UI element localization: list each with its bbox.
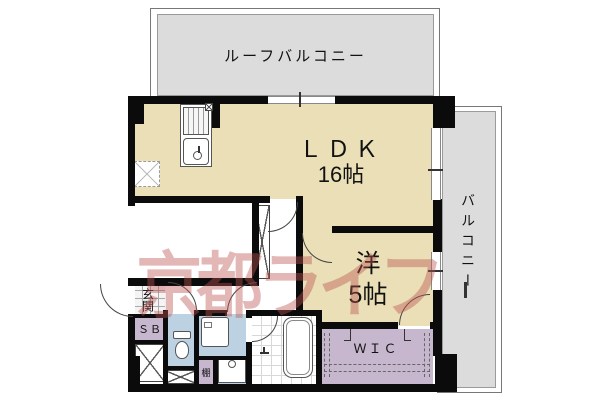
- shower-pipe-icon: [263, 347, 265, 354]
- window: [268, 96, 335, 104]
- wic-label: ＷＩＣ: [336, 339, 416, 355]
- wic-hanger-dashes-bottom: [324, 364, 430, 372]
- western-room-label: 洋: [340, 248, 396, 276]
- bathtub-inner-icon: [286, 320, 310, 375]
- floor-plan: ルーフバルコニー バルコニー ＳＢ 棚: [0, 0, 600, 400]
- gas-stove-icon: [183, 107, 209, 135]
- toilet-door-arc: [168, 282, 197, 311]
- range-hood-icon: [205, 103, 213, 111]
- wall: [435, 354, 457, 385]
- wall: [133, 314, 165, 318]
- roof-balcony-label: ルーフバルコニー: [157, 14, 434, 96]
- ldk-door-arc: [268, 202, 298, 232]
- wall: [163, 366, 199, 370]
- ldk-floor-lower: [296, 199, 435, 229]
- wall: [128, 384, 457, 392]
- wall: [433, 96, 455, 128]
- wall: [163, 310, 168, 385]
- window: [431, 128, 441, 200]
- wall: [430, 322, 435, 329]
- refrigerator-space-icon: [134, 161, 160, 187]
- wall: [198, 310, 227, 316]
- wall: [296, 226, 302, 233]
- wall: [246, 342, 252, 385]
- entrance-door-arc: [100, 284, 133, 317]
- faucet-spout-icon: [198, 146, 200, 153]
- wall: [128, 196, 270, 203]
- washroom-door-arc: [227, 282, 257, 312]
- wall: [128, 96, 268, 104]
- wall: [133, 340, 165, 344]
- wall: [433, 199, 442, 252]
- ldk-size-label: 16帖: [283, 160, 399, 186]
- toilet-tank-icon: [173, 331, 191, 339]
- window-tick: [299, 92, 301, 107]
- wall: [332, 226, 435, 233]
- wall: [316, 322, 398, 329]
- window-tick: [428, 270, 443, 272]
- washbasin-faucet-icon: [204, 322, 212, 328]
- wall: [296, 196, 303, 312]
- wall: [128, 96, 144, 124]
- wall: [213, 358, 218, 384]
- wall: [212, 102, 220, 128]
- balcony-partition-mark: [464, 282, 467, 298]
- wall: [128, 356, 140, 392]
- entrance-label: 玄関: [140, 285, 156, 314]
- balcony-label: バルコニー: [459, 165, 477, 320]
- shoe-box: ＳＢ: [135, 318, 165, 340]
- window-tick: [428, 169, 443, 171]
- wall: [198, 356, 248, 360]
- shelf: 棚: [199, 360, 213, 384]
- wall: [252, 196, 259, 286]
- washing-machine-drain-icon: [228, 360, 236, 368]
- toilet-icon: [175, 341, 189, 359]
- wall: [194, 310, 199, 385]
- wall: [335, 96, 437, 104]
- storage-box-icon: [165, 370, 196, 384]
- western-room-size-label: 5帖: [328, 279, 408, 307]
